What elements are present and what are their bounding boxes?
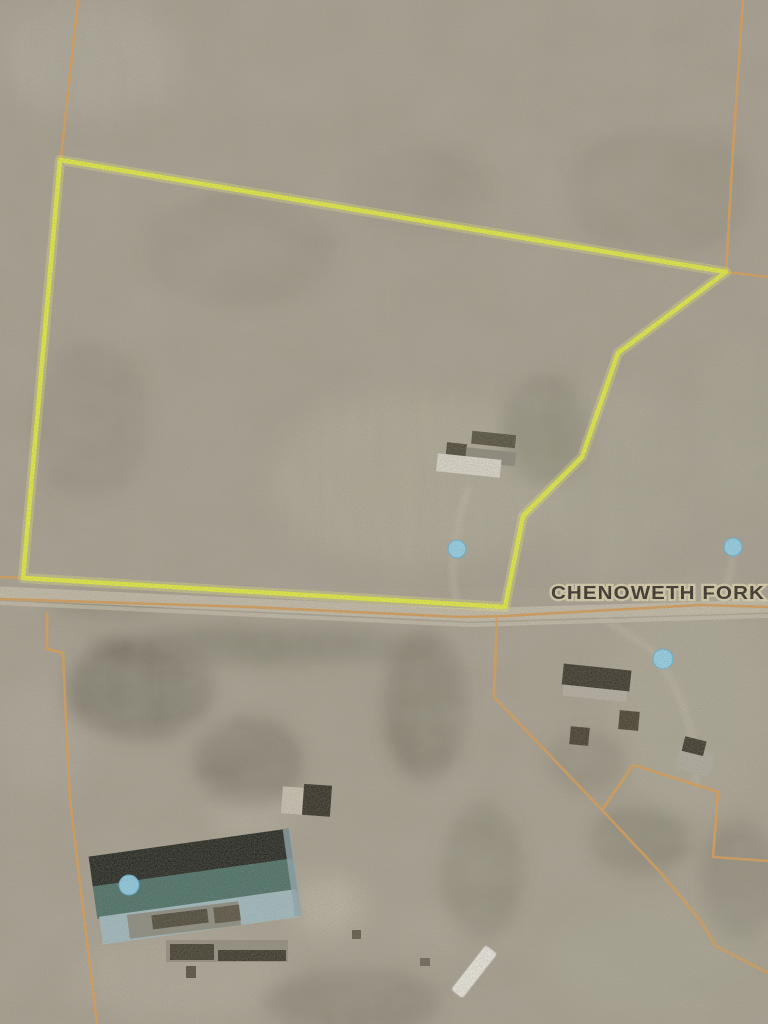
aerial-map-view[interactable]: CHENOWETH FORK <box>0 0 768 1024</box>
map-canvas[interactable]: CHENOWETH FORK <box>0 0 768 1024</box>
photo-grain-overlay <box>0 0 768 1024</box>
